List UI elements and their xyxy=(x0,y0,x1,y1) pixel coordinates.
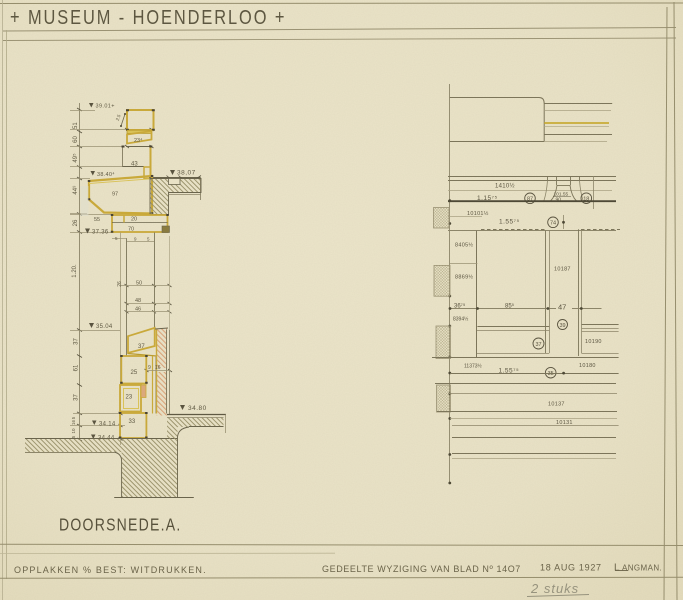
svg-text:50: 50 xyxy=(136,281,142,287)
svg-text:8405½: 8405½ xyxy=(455,242,473,249)
svg-text:10190: 10190 xyxy=(585,339,602,345)
svg-text:8869½: 8869½ xyxy=(455,274,473,281)
svg-text:9: 9 xyxy=(148,365,151,371)
svg-text:OPPLAKKEN % BEST: WITDRUKKEN.: OPPLAKKEN % BEST: WITDRUKKEN. xyxy=(14,565,207,575)
svg-text:GEDEELTE WYZIGING VAN BLAD Nº: GEDEELTE WYZIGING VAN BLAD Nº 14O7 xyxy=(322,564,521,574)
svg-text:61: 61 xyxy=(74,364,80,371)
svg-text:11373½: 11373½ xyxy=(464,363,483,370)
svg-text:+ MUSEUM - HOENDERLOO +: + MUSEUM - HOENDERLOO + xyxy=(10,5,286,28)
svg-text:10180: 10180 xyxy=(579,363,596,369)
svg-text:16: 16 xyxy=(71,420,76,426)
svg-text:37.36: 37.36 xyxy=(92,230,109,236)
svg-text:23: 23 xyxy=(126,395,133,401)
svg-text:37: 37 xyxy=(535,342,541,348)
svg-text:34.14: 34.14 xyxy=(99,422,116,428)
svg-text:36⁷⁵: 36⁷⁵ xyxy=(454,303,466,310)
svg-text:44⁹: 44⁹ xyxy=(72,185,79,195)
svg-text:49⁵: 49⁵ xyxy=(72,153,79,163)
svg-text:60: 60 xyxy=(73,136,79,143)
svg-text:18 AUG 1927: 18 AUG 1927 xyxy=(540,563,602,573)
svg-text:43: 43 xyxy=(131,162,138,168)
svg-text:85⁵: 85⁵ xyxy=(505,303,515,310)
svg-text:1410½: 1410½ xyxy=(495,183,515,190)
svg-text:35: 35 xyxy=(548,371,554,377)
svg-text:1.20.: 1.20. xyxy=(72,264,78,278)
svg-text:8394½: 8394½ xyxy=(453,316,469,323)
svg-text:74: 74 xyxy=(550,221,556,227)
svg-text:2 stuks: 2 stuks xyxy=(530,581,579,596)
svg-text:16: 16 xyxy=(155,365,161,371)
svg-text:37: 37 xyxy=(138,344,145,350)
svg-text:26: 26 xyxy=(117,281,123,287)
svg-text:23⁴: 23⁴ xyxy=(134,137,143,144)
svg-text:38.40⁴: 38.40⁴ xyxy=(97,171,115,178)
svg-text:37: 37 xyxy=(74,338,80,345)
svg-text:38,07: 38,07 xyxy=(177,170,196,177)
svg-text:25: 25 xyxy=(131,370,138,376)
svg-text:70: 70 xyxy=(128,227,134,233)
svg-text:DOORSNEDE.A.: DOORSNEDE.A. xyxy=(59,515,182,535)
svg-text:ANGMAN.: ANGMAN. xyxy=(622,564,662,573)
svg-text:26: 26 xyxy=(73,219,79,226)
svg-text:1.55⁷⁵: 1.55⁷⁵ xyxy=(499,219,520,226)
svg-text:37: 37 xyxy=(74,394,80,401)
svg-text:35.04: 35.04 xyxy=(96,324,113,330)
svg-text:55: 55 xyxy=(94,217,100,223)
svg-text:L: L xyxy=(614,563,620,574)
svg-text:47: 47 xyxy=(558,303,566,312)
svg-text:10137: 10137 xyxy=(548,402,565,408)
svg-text:39: 39 xyxy=(559,323,565,329)
svg-text:33: 33 xyxy=(129,419,136,425)
svg-text:10131: 10131 xyxy=(556,420,573,426)
svg-text:97: 97 xyxy=(112,192,118,198)
svg-text:10187: 10187 xyxy=(554,267,571,273)
svg-text:39.01+: 39.01+ xyxy=(96,104,115,110)
svg-text:51: 51 xyxy=(73,122,79,129)
svg-text:48: 48 xyxy=(135,298,141,304)
svg-text:46: 46 xyxy=(135,307,141,313)
svg-text:10: 10 xyxy=(71,428,76,434)
svg-text:20: 20 xyxy=(131,216,137,222)
svg-text:10101½: 10101½ xyxy=(467,210,489,217)
svg-text:34.80: 34.80 xyxy=(188,405,207,412)
